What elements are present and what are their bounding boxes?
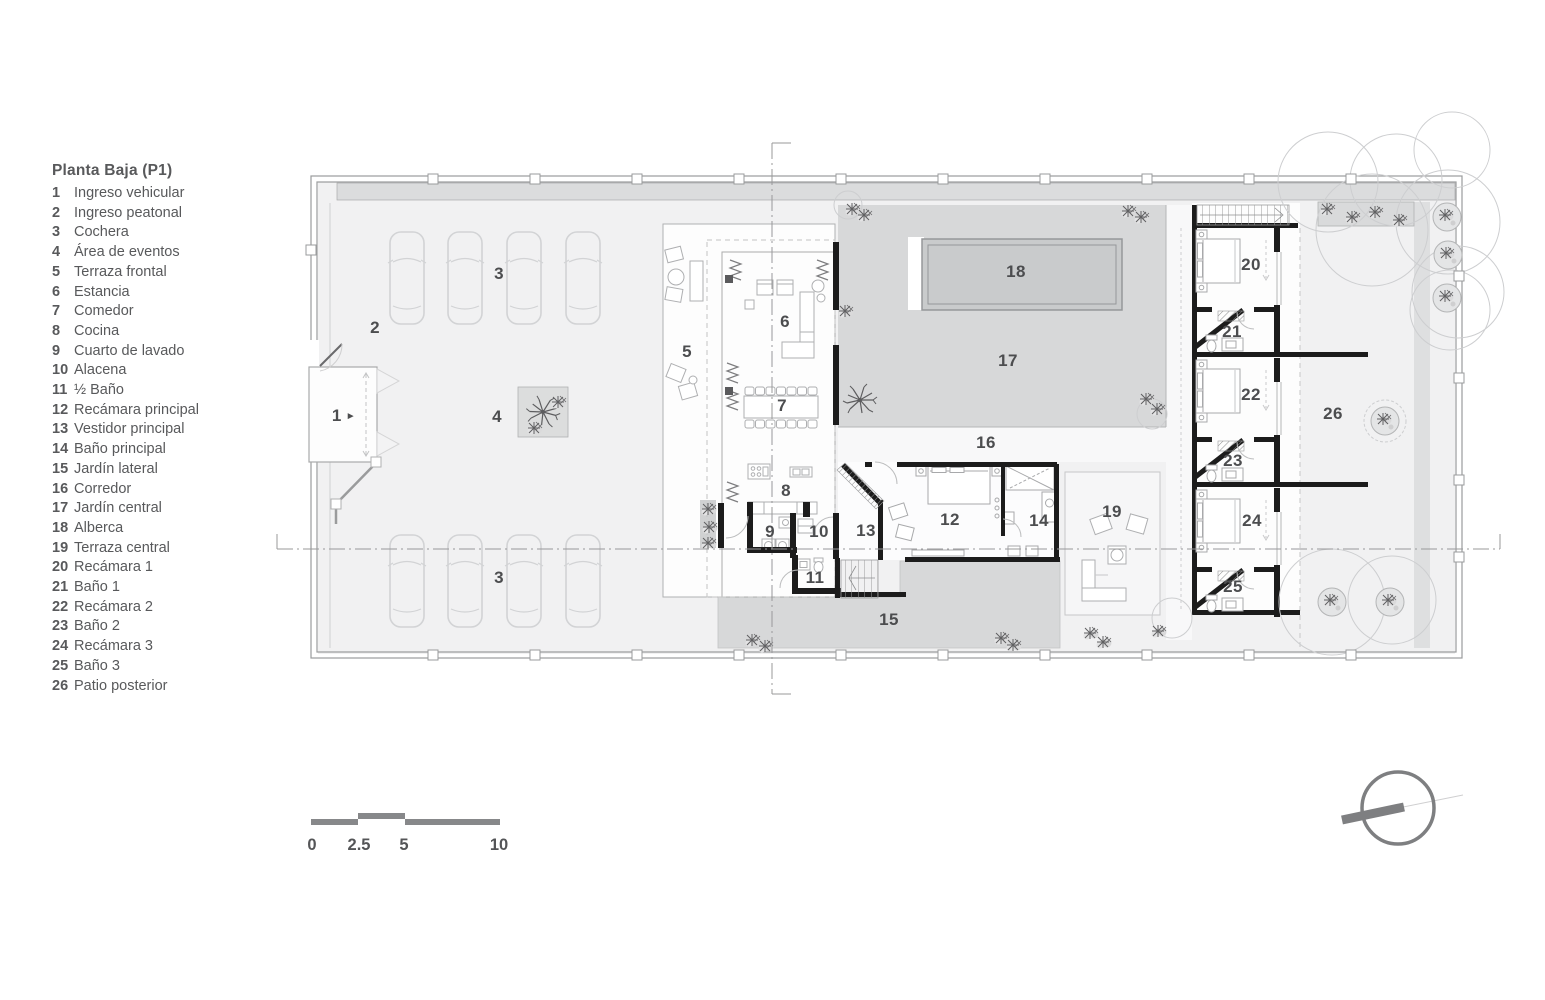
legend-item-9: 9Cuarto de lavado	[52, 342, 199, 362]
plan-label-room-18: 18	[1006, 262, 1026, 282]
plan-label-room-20: 20	[1241, 255, 1261, 275]
plan-label-room-17: 17	[998, 351, 1018, 371]
entry-direction-icon: ►	[346, 411, 356, 422]
patio-walkway	[1414, 202, 1430, 648]
plan-label-room-9: 9	[765, 522, 775, 542]
plan-label-room-8: 8	[781, 481, 791, 501]
scale-tick-5: 5	[399, 836, 408, 855]
plan-label-room-6: 6	[780, 312, 790, 332]
legend-item-18: 18Alberca	[52, 519, 199, 539]
legend-item-21: 21Baño 1	[52, 578, 199, 598]
scale-bar	[311, 813, 500, 825]
scale-tick-2-5: 2.5	[348, 836, 371, 855]
legend-item-15: 15Jardín lateral	[52, 460, 199, 480]
scale-tick-10: 10	[490, 836, 508, 855]
plan-label-room-19: 19	[1102, 502, 1122, 522]
plan-label-room-21: 21	[1222, 322, 1242, 342]
plan-label-room-25: 25	[1223, 577, 1243, 597]
floor-plan-drawing	[0, 0, 1545, 1000]
legend-item-8: 8Cocina	[52, 322, 199, 342]
plan-label-room-12: 12	[940, 510, 960, 530]
legend-item-14: 14Baño principal	[52, 440, 199, 460]
legend-item-16: 16Corredor	[52, 480, 199, 500]
legend: Planta Baja (P1) 1Ingreso vehicular 2Ing…	[52, 162, 199, 696]
plan-label-room-15: 15	[879, 610, 899, 630]
legend-item-5: 5Terraza frontal	[52, 263, 199, 283]
legend-item-24: 24Recámara 3	[52, 637, 199, 657]
legend-item-13: 13Vestidor principal	[52, 420, 199, 440]
plan-label-room-1: 1►	[332, 406, 356, 426]
legend-item-17: 17Jardín central	[52, 499, 199, 519]
legend-item-11: 11½ Baño	[52, 381, 199, 401]
legend-item-26: 26Patio posterior	[52, 677, 199, 697]
plan-label-room-13: 13	[856, 521, 876, 541]
legend-item-25: 25Baño 3	[52, 657, 199, 677]
roof-band	[337, 183, 1455, 200]
legend-item-6: 6Estancia	[52, 283, 199, 303]
plan-label-room-5: 5	[682, 342, 692, 362]
wing-stairs	[1197, 205, 1289, 225]
floor-plan-sheet: Planta Baja (P1) 1Ingreso vehicular 2Ing…	[0, 0, 1545, 1000]
plan-label-room-7: 7	[777, 396, 787, 416]
plan-label-room-23: 23	[1223, 451, 1243, 471]
plan-label-room-16: 16	[976, 433, 996, 453]
plan-label-room-26: 26	[1323, 404, 1343, 424]
plan-label-room-2: 2	[370, 318, 380, 338]
north-arrow	[1342, 772, 1463, 844]
main-stairs	[841, 560, 878, 598]
legend-item-3: 3Cochera	[52, 223, 199, 243]
plan-label-room-3b: 3	[494, 568, 504, 588]
plan-label-room-24: 24	[1242, 511, 1262, 531]
legend-item-4: 4Área de eventos	[52, 243, 199, 263]
legend-item-12: 12Recámara principal	[52, 401, 199, 421]
legend-item-1: 1Ingreso vehicular	[52, 184, 199, 204]
legend-item-19: 19Terraza central	[52, 539, 199, 559]
legend-item-7: 7Comedor	[52, 302, 199, 322]
plan-label-room-22: 22	[1241, 385, 1261, 405]
legend-item-20: 20Recámara 1	[52, 558, 199, 578]
plan-label-room-3a: 3	[494, 264, 504, 284]
legend-item-10: 10Alacena	[52, 361, 199, 381]
page-title: Planta Baja (P1)	[52, 162, 199, 180]
plan-label-room-10: 10	[809, 522, 829, 542]
plan-label-room-11: 11	[806, 568, 825, 588]
legend-item-23: 23Baño 2	[52, 617, 199, 637]
plan-label-room-14: 14	[1029, 511, 1049, 531]
legend-item-22: 22Recámara 2	[52, 598, 199, 618]
legend-item-2: 2Ingreso peatonal	[52, 204, 199, 224]
plan-label-room-4: 4	[492, 407, 502, 427]
scale-tick-0: 0	[307, 836, 316, 855]
